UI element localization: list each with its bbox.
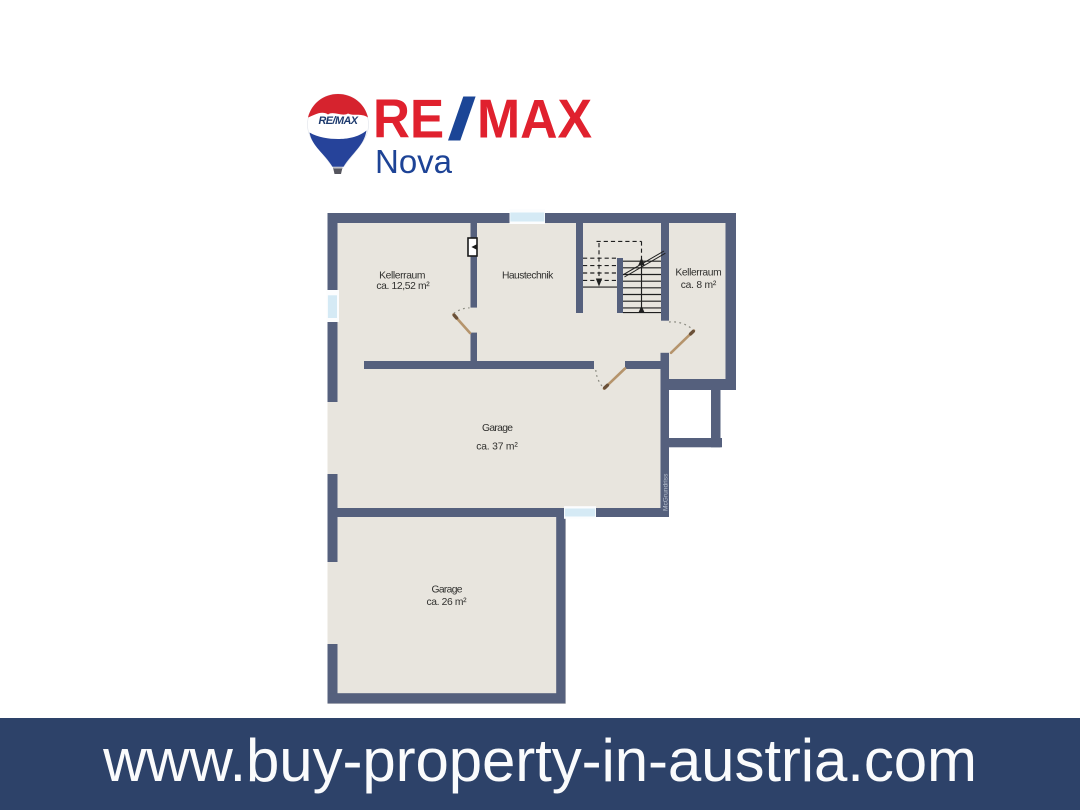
svg-text:ca. 37 m²: ca. 37 m² [476,441,518,452]
svg-text:Nova: Nova [375,143,453,180]
svg-text:RE/MAX: RE/MAX [319,115,359,127]
svg-text:McGrundriss: McGrundriss [663,473,670,511]
svg-text:ca. 26 m²: ca. 26 m² [427,597,468,608]
svg-text:Kellerraum: Kellerraum [379,270,425,281]
svg-text:ca. 8 m²: ca. 8 m² [681,280,717,291]
svg-text:Garage: Garage [432,585,463,596]
svg-text:Haustechnik: Haustechnik [502,270,554,281]
svg-text:Garage: Garage [482,423,513,434]
svg-text:RE: RE [373,89,444,150]
svg-text:Kellerraum: Kellerraum [675,267,721,278]
svg-text:MAX: MAX [477,89,592,150]
svg-text:ca. 12,52 m²: ca. 12,52 m² [376,281,430,292]
